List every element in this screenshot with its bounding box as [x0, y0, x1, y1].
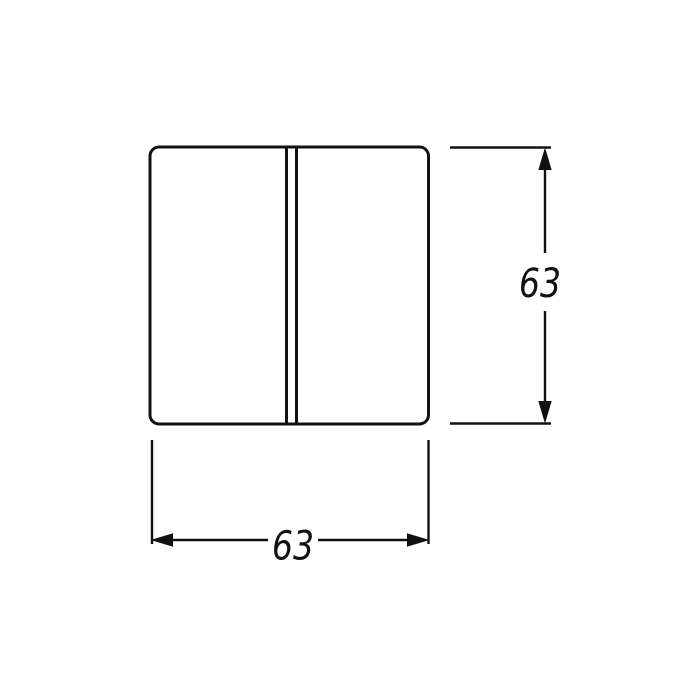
height-dimension: 63 [450, 148, 561, 424]
arrow-right-icon [407, 533, 430, 546]
switch-plate-outline [150, 147, 429, 424]
arrow-up-icon [538, 148, 551, 171]
dimension-drawing: 63 63 [0, 0, 700, 700]
arrow-left-icon [151, 533, 174, 546]
arrow-down-icon [538, 401, 551, 424]
drawing-canvas: 63 63 [0, 0, 700, 700]
width-dimension: 63 [151, 440, 430, 570]
height-dimension-label: 63 [519, 261, 561, 307]
width-dimension-label: 63 [272, 524, 314, 570]
